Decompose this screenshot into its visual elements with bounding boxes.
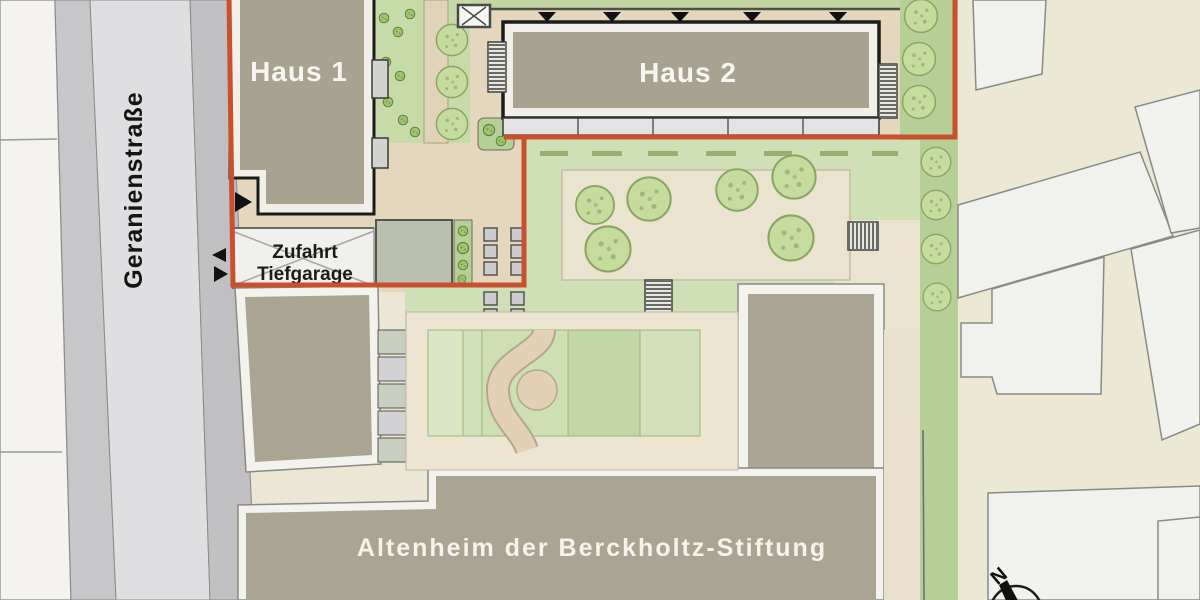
tree-icon xyxy=(921,147,950,176)
stairs-icon xyxy=(879,64,897,118)
altenheim-west-wing xyxy=(245,295,372,462)
shrub-icon xyxy=(395,71,405,81)
site-plan-canvas: Geranienstraße xyxy=(0,0,1200,600)
tree-icon xyxy=(921,234,950,263)
stairs-icon xyxy=(848,222,878,250)
elevator-shaft-icon xyxy=(458,5,490,27)
site-plan: Geranienstraße xyxy=(0,0,1200,600)
stairs-icon xyxy=(488,42,506,92)
hedge-dashes xyxy=(540,151,898,156)
tree-icon xyxy=(585,226,630,271)
north-boundary-strip xyxy=(460,0,958,10)
shrub-icon xyxy=(458,226,468,236)
haus-2-label: Haus 2 xyxy=(639,57,737,88)
shrub-icon xyxy=(405,9,415,19)
tree-icon xyxy=(921,190,950,219)
east-walkway xyxy=(884,330,920,600)
street-label: Geranienstraße xyxy=(120,91,148,288)
shrub-icon xyxy=(457,242,468,253)
tree-icon xyxy=(768,215,813,260)
tree-icon xyxy=(772,155,815,198)
altenheim-label: Altenheim der Berckholtz-Stiftung xyxy=(357,534,827,562)
tree-icon xyxy=(576,186,614,224)
neighbor-building xyxy=(1158,517,1200,600)
tree-icon xyxy=(716,169,758,211)
tree-icon xyxy=(923,283,951,311)
balcony xyxy=(372,138,388,168)
ramp-label-line2: Tiefgarage xyxy=(257,264,353,285)
street: Geranienstraße xyxy=(55,0,256,600)
tree-icon xyxy=(436,24,467,55)
terrace-row xyxy=(503,118,879,135)
tree-icon xyxy=(903,43,936,76)
shrub-icon xyxy=(483,124,494,135)
tree-icon xyxy=(436,66,467,97)
shrub-icon xyxy=(379,13,389,23)
garage-structure xyxy=(376,220,452,286)
shrub-icon xyxy=(393,27,403,37)
altenheim-courtyard xyxy=(406,312,738,470)
balcony-column xyxy=(378,330,406,462)
tree-icon xyxy=(627,177,670,220)
shrub-icon xyxy=(410,127,420,137)
haus-2-building: Haus 2 xyxy=(458,5,897,150)
tree-icon xyxy=(905,0,938,32)
ramp-label-line1: Zufahrt xyxy=(272,242,338,263)
tree-icon xyxy=(903,86,936,119)
shrub-icon xyxy=(398,115,408,125)
shrub-icon xyxy=(458,275,466,283)
shrub-icon xyxy=(458,260,468,270)
tree-icon xyxy=(436,108,467,139)
balcony xyxy=(372,60,388,98)
haus-1-label: Haus 1 xyxy=(250,56,348,87)
